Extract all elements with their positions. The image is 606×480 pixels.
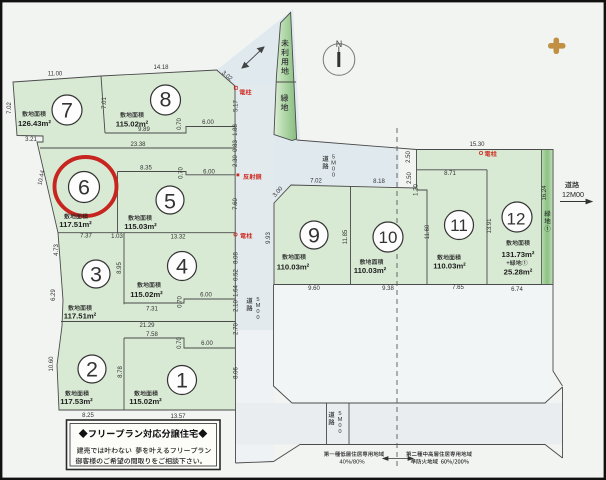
svg-text:8.08: 8.08 (233, 252, 239, 264)
svg-text:126.43m²: 126.43m² (18, 119, 51, 128)
svg-text:8.06: 8.06 (233, 367, 239, 379)
svg-text:8.71: 8.71 (444, 171, 456, 177)
svg-text:12M00: 12M00 (562, 190, 584, 199)
svg-text:9.60: 9.60 (308, 286, 320, 292)
svg-text:1.64: 1.64 (233, 285, 239, 297)
svg-text:3.21: 3.21 (25, 137, 37, 143)
svg-text:25.28m²: 25.28m² (504, 268, 533, 277)
svg-text:6.00: 6.00 (201, 341, 213, 347)
svg-text:5.17: 5.17 (233, 100, 239, 112)
svg-text:131.73m²: 131.73m² (502, 250, 535, 259)
svg-text:2.50: 2.50 (407, 172, 413, 184)
svg-text:7.60: 7.60 (233, 198, 239, 210)
svg-text:117.51m²: 117.51m² (59, 220, 92, 229)
svg-text:7.31: 7.31 (146, 307, 158, 313)
svg-text:9.38: 9.38 (382, 286, 394, 292)
svg-text:117.51m²: 117.51m² (64, 312, 97, 321)
svg-text:1.88: 1.88 (233, 124, 239, 136)
svg-text:7.01: 7.01 (102, 97, 108, 109)
svg-text:7.65: 7.65 (452, 285, 464, 291)
svg-text:13.32: 13.32 (170, 235, 186, 241)
svg-text:1.03: 1.03 (111, 234, 123, 240)
svg-text:9.89: 9.89 (138, 127, 150, 133)
svg-text:7.02: 7.02 (7, 102, 13, 114)
svg-text:8.25: 8.25 (82, 413, 94, 419)
svg-text:9.93: 9.93 (266, 232, 272, 244)
svg-text:115.02m²: 115.02m² (129, 397, 162, 406)
svg-text:10: 10 (379, 228, 398, 247)
svg-text:110.03m²: 110.03m² (277, 263, 310, 272)
svg-text:5: 5 (164, 190, 176, 214)
svg-text:7.58: 7.58 (146, 332, 158, 338)
svg-text:2.10: 2.10 (233, 300, 239, 312)
svg-text:40%/80%: 40%/80% (339, 460, 365, 466)
svg-text:115.02m²: 115.02m² (130, 290, 163, 299)
svg-text:11.00: 11.00 (48, 72, 63, 78)
svg-text:8.95: 8.95 (117, 262, 123, 274)
svg-text:2.50: 2.50 (406, 151, 412, 163)
svg-text:4.73: 4.73 (54, 244, 60, 256)
svg-text:7: 7 (61, 99, 73, 123)
svg-text:0.70: 0.70 (177, 337, 183, 349)
svg-text:23.38: 23.38 (130, 142, 146, 148)
svg-text:6.00: 6.00 (200, 293, 212, 299)
svg-text:11.60: 11.60 (425, 224, 431, 239)
svg-text:2.70: 2.70 (233, 323, 239, 335)
svg-text:15.30: 15.30 (469, 142, 485, 148)
svg-text:10.60: 10.60 (49, 356, 55, 372)
svg-text:8.35: 8.35 (140, 166, 152, 172)
svg-text:7.02: 7.02 (310, 179, 322, 185)
svg-text:21.29: 21.29 (139, 323, 155, 329)
svg-text:3: 3 (90, 263, 102, 287)
svg-text:6.00: 6.00 (202, 120, 214, 126)
svg-text:110.03m²: 110.03m² (433, 262, 466, 271)
svg-text:6: 6 (78, 176, 90, 200)
svg-text:117.53m²: 117.53m² (60, 397, 93, 406)
svg-text:1: 1 (176, 369, 188, 393)
svg-text:13.91: 13.91 (487, 218, 493, 234)
svg-text:11: 11 (450, 216, 468, 235)
svg-text:4: 4 (176, 255, 188, 279)
svg-text:8.78: 8.78 (118, 366, 124, 378)
svg-text:12: 12 (507, 210, 526, 229)
svg-text:11.85: 11.85 (343, 229, 349, 244)
svg-text:16.24: 16.24 (542, 185, 548, 201)
svg-text:6.29: 6.29 (51, 289, 57, 301)
svg-text:2: 2 (86, 358, 98, 382)
svg-text:2.30: 2.30 (233, 155, 239, 167)
svg-text:0.83: 0.83 (233, 140, 239, 152)
svg-text:9: 9 (308, 224, 320, 248)
svg-text:7.37: 7.37 (80, 234, 92, 240)
svg-text:8.18: 8.18 (373, 179, 385, 185)
svg-text:115.03m²: 115.03m² (124, 222, 157, 231)
svg-text:0.70: 0.70 (178, 296, 184, 308)
svg-text:8: 8 (160, 88, 172, 112)
svg-text:0.70: 0.70 (177, 118, 183, 130)
svg-text:110.03m²: 110.03m² (354, 266, 387, 275)
svg-text:0.52: 0.52 (233, 269, 239, 281)
svg-text:1.20: 1.20 (414, 184, 420, 196)
svg-text:13.57: 13.57 (170, 414, 186, 420)
svg-text:0.70: 0.70 (179, 167, 185, 179)
svg-text:6.74: 6.74 (511, 287, 523, 293)
svg-text:14.18: 14.18 (153, 65, 169, 71)
svg-text:6.00: 6.00 (203, 170, 215, 176)
